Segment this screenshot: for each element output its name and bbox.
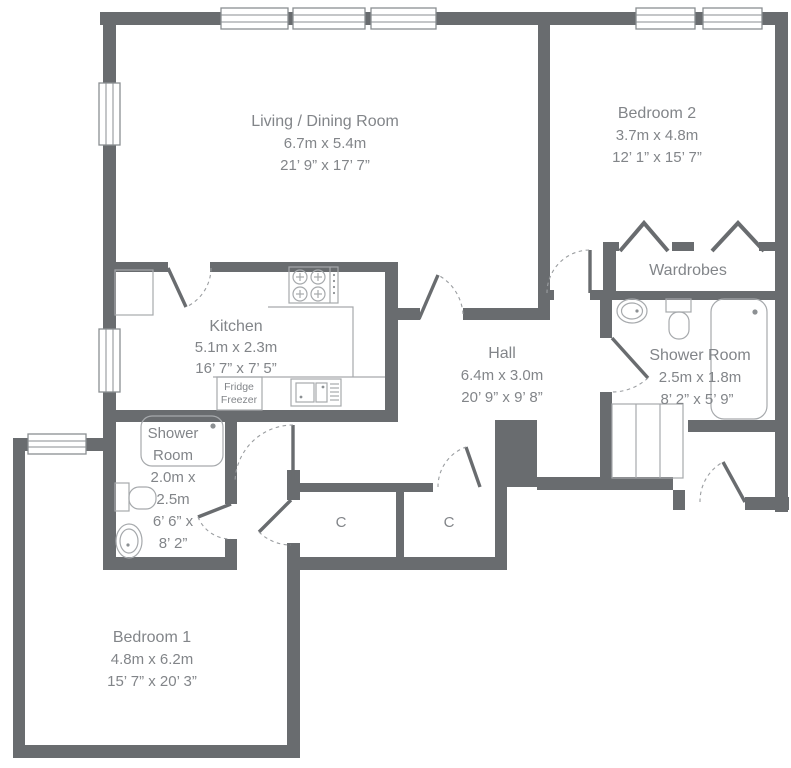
wall-segment [398, 308, 420, 320]
wall-segment [103, 410, 398, 422]
wall-segment [745, 497, 789, 510]
hall-label: Hall 6.4m x 3.0m 20’ 9” x 9’ 8” [461, 345, 544, 406]
room-name: Hall [488, 345, 516, 362]
wall-segment [603, 242, 619, 251]
room-name-line: Shower [148, 425, 199, 442]
bedroom1-corridor-door [235, 425, 293, 483]
window [99, 83, 120, 145]
room-name: Bedroom 2 [618, 105, 696, 122]
toilet-icon [115, 483, 156, 511]
room-name: Shower Room [649, 347, 750, 364]
shower-room-right-label: Shower Room 2.5m x 1.8m 8’ 2” x 5’ 9” [649, 347, 750, 408]
room-name: Living / Dining Room [251, 113, 399, 130]
wall-segment [103, 557, 237, 570]
room-dims-metric: 3.7m x 4.8m [616, 127, 699, 144]
wardrobe-open-door-icon [620, 223, 668, 251]
wall-segment [287, 557, 300, 758]
hob-icon [289, 267, 338, 303]
wall-segment [688, 420, 788, 432]
kitchen-label: Kitchen 5.1m x 2.3m 16’ 7” x 7’ 5” [195, 318, 278, 377]
shower-room-left-door [198, 504, 231, 539]
shower-room-right-door [612, 338, 648, 392]
basin-icon [116, 524, 142, 558]
closet-left-door [259, 500, 291, 545]
wall-segment [775, 12, 788, 512]
wall-segment [225, 422, 237, 504]
window [99, 329, 120, 392]
wall-segment [495, 420, 537, 487]
room-dims-line: 2.5m [156, 491, 189, 508]
room-name: Kitchen [209, 318, 262, 335]
basin-icon [617, 299, 647, 323]
kitchen-door [168, 268, 211, 307]
shower-room-left-label: Shower Room 2.0m x 2.5m 6’ 6” x 8’ 2” [148, 425, 199, 552]
living-room-label: Living / Dining Room 6.7m x 5.4m 21’ 9” … [251, 113, 399, 174]
closet-right-door [438, 447, 480, 487]
bedroom2-door [547, 250, 590, 293]
wall-segment [538, 290, 554, 300]
window [371, 8, 436, 29]
wall-segment [673, 490, 685, 510]
cupboard-shelves [612, 404, 683, 478]
room-name: Wardrobes [649, 262, 727, 279]
room-dims-imperial: 16’ 7” x 7’ 5” [195, 360, 276, 377]
room-dims-imperial: 12’ 1” x 15’ 7” [612, 149, 702, 166]
wardrobes-label: Wardrobes [649, 262, 727, 279]
floorplan-drawing: Living / Dining Room 6.7m x 5.4m 21’ 9” … [0, 0, 791, 768]
wall-segment [600, 392, 612, 490]
room-dims-line: 2.0m x [150, 469, 196, 486]
fridge-freezer-label: Fridge Freezer [221, 381, 258, 406]
room-dims-metric: 2.5m x 1.8m [659, 369, 742, 386]
wall-segment [538, 25, 550, 320]
window [636, 8, 695, 29]
appliance-label-line: Fridge [224, 381, 254, 393]
room-labels: Living / Dining Room 6.7m x 5.4m 21’ 9” … [107, 105, 751, 690]
window [221, 8, 288, 29]
window [703, 8, 762, 29]
wall-segment [385, 262, 398, 422]
living-room-door [419, 275, 463, 319]
wall-segment [463, 308, 550, 320]
room-dims-metric: 6.7m x 5.4m [284, 135, 367, 152]
wall-segment [225, 539, 237, 557]
bedroom2-label: Bedroom 2 3.7m x 4.8m 12’ 1” x 15’ 7” [612, 105, 702, 166]
wall-segment [287, 557, 507, 570]
appliance-label-line: Freezer [221, 394, 258, 406]
wall-segment [537, 477, 673, 490]
room-dims-imperial: 21’ 9” x 17’ 7” [280, 157, 370, 174]
closet-label: C [336, 514, 347, 531]
wall-segment [287, 543, 300, 557]
window [28, 434, 86, 454]
wall-segment [495, 487, 507, 557]
room-dims-metric: 4.8m x 6.2m [111, 651, 194, 668]
wall-segment [13, 745, 300, 758]
wall-segment [672, 242, 694, 251]
room-dims-imperial: 20’ 9” x 9’ 8” [461, 389, 542, 406]
wall-segment [13, 438, 25, 758]
room-dims-line: 6’ 6” x [153, 513, 194, 530]
room-dims-metric: 6.4m x 3.0m [461, 367, 544, 384]
bedroom1-label: Bedroom 1 4.8m x 6.2m 15’ 7” x 20’ 3” [107, 629, 197, 690]
closet-labels: C C [336, 514, 455, 531]
room-dims-metric: 5.1m x 2.3m [195, 339, 278, 356]
entrance-door [700, 462, 745, 502]
room-dims-imperial: 8’ 2” x 5’ 9” [660, 391, 733, 408]
kitchen-unit [115, 270, 153, 315]
toilet-icon [666, 299, 691, 339]
wardrobe-open-door-icon [712, 223, 764, 251]
room-dims-line: 8’ 2” [159, 535, 188, 552]
room-name: Bedroom 1 [113, 629, 191, 646]
kitchen-counter-edge [268, 307, 353, 377]
wall-segment [600, 300, 612, 338]
window [293, 8, 365, 29]
room-dims-imperial: 15’ 7” x 20’ 3” [107, 673, 197, 690]
floorplan-page: Living / Dining Room 6.7m x 5.4m 21’ 9” … [0, 0, 791, 768]
wall-segment [287, 483, 433, 492]
closet-label: C [444, 514, 455, 531]
wall-segment [396, 490, 404, 557]
kitchen-sink-icon [291, 379, 341, 406]
room-name-line: Room [153, 447, 193, 464]
